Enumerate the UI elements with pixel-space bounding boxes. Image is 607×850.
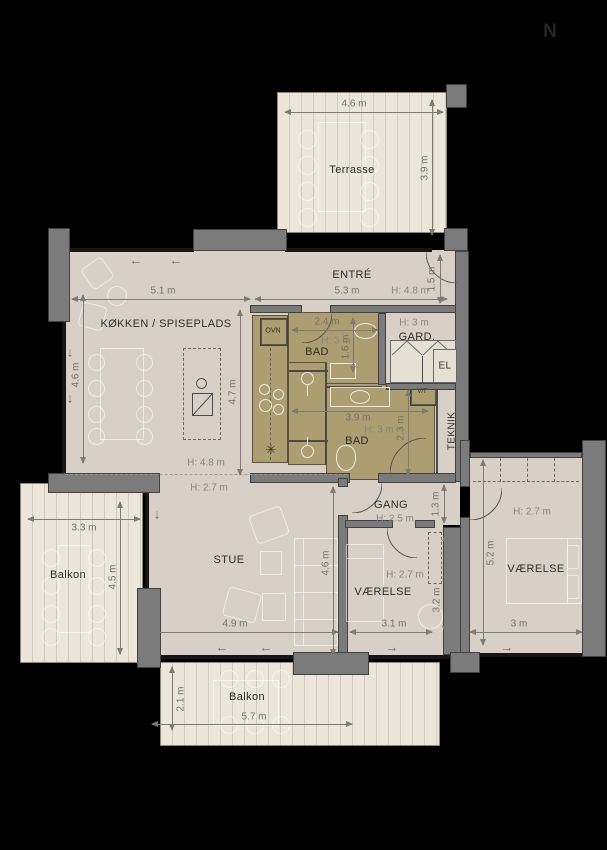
- wall-nw-pier: [48, 228, 70, 322]
- terrace-chair: [298, 182, 317, 201]
- balcony-chair: [220, 670, 238, 688]
- dining-chair: [88, 354, 105, 371]
- gard-divider: [422, 356, 423, 383]
- dim-gang-width: 1.3 m: [431, 491, 442, 516]
- dining-chair: [88, 406, 105, 423]
- dim-bad1-width-line: [292, 330, 378, 331]
- shower-stem-1: [307, 385, 308, 396]
- dim-stue-depth-line: [333, 487, 334, 655]
- teknik-label: TEKNIK: [447, 412, 458, 451]
- vaerelse2-south-glass: [470, 653, 583, 657]
- slide-arrow-left-icon: ←: [170, 254, 183, 267]
- dim-entre-width: 5.3 m: [334, 286, 359, 297]
- dim-balkonl-width-line: [28, 519, 140, 520]
- dim-v2-width-line: [470, 632, 582, 633]
- dim-kitchen-depth: 4.6 m: [71, 362, 82, 387]
- koekken-label: KØKKEN / SPISEPLADS: [100, 318, 231, 330]
- gard-ceiling: H: 3 m: [399, 318, 428, 329]
- dim-balkonb-depth: 2.1 m: [176, 686, 187, 711]
- dim-entre-width-line: [255, 299, 447, 300]
- balcony-chair: [246, 670, 264, 688]
- shower-divider-mid: [288, 440, 328, 442]
- dim-entre-niche: 1.5 m: [427, 266, 438, 291]
- vt-label: V/T: [417, 389, 426, 395]
- v2-ceiling: H: 2.7 m: [513, 507, 551, 518]
- wall-corr-v2-bottom: [460, 517, 470, 657]
- dim-v2-depth: 5.2 m: [486, 540, 497, 565]
- v2-wardrobe-tick-2: [527, 458, 528, 482]
- stue-side-table: [260, 551, 282, 575]
- balcony-chair: [42, 605, 60, 623]
- cooktop-burner-1: [259, 384, 270, 395]
- dim-stue-width: 4.9 m: [222, 619, 247, 630]
- dim-bad2-depth-line: [408, 390, 409, 475]
- dining-chair: [136, 380, 153, 397]
- dim-balkonl-depth-line: [120, 502, 121, 654]
- cooktop-burner-3: [259, 399, 272, 412]
- vaerelse1-bed: [346, 544, 384, 622]
- dim-v2-width: 3 m: [511, 619, 528, 630]
- bad2-sink: [350, 390, 370, 404]
- dining-chair: [136, 406, 153, 423]
- wall-east-outer: [582, 440, 606, 657]
- kitchen-north-glass: [66, 248, 194, 252]
- v1-ceiling: H: 2.7 m: [386, 570, 424, 581]
- terrace-chair: [298, 130, 317, 149]
- floor-plan-canvas: ✳: [0, 0, 607, 850]
- slide-arrow-left-icon: ←: [216, 641, 229, 654]
- dim-kitchen-width-line: [72, 299, 250, 300]
- dim-terrace-depth-line: [432, 100, 433, 235]
- balcony-chair: [272, 670, 290, 688]
- dim-terrace-width: 4.6 m: [341, 99, 366, 110]
- terrasse-label: Terrasse: [329, 164, 374, 176]
- dim-bad1-depth: 1.6 m: [341, 334, 352, 359]
- stue-label: STUE: [214, 554, 245, 566]
- terrace-chair: [298, 208, 317, 227]
- terrace-chair: [360, 208, 379, 227]
- v2-wardrobe-tick-1: [500, 458, 501, 482]
- wall-top-block: [193, 229, 287, 251]
- shower-head-2: [301, 445, 314, 458]
- bad2-label: BAD: [345, 435, 369, 447]
- kitchen-sink-icon: ✳: [266, 442, 277, 458]
- slide-arrow-left-icon: ←: [130, 254, 143, 267]
- slide-arrow-down-icon: ↓: [154, 508, 161, 521]
- wall-balcony-pier: [137, 588, 161, 668]
- stue-south-glass: [150, 655, 294, 659]
- wall-gang-v1-right: [415, 520, 435, 528]
- terrace-chair: [298, 156, 317, 175]
- dim-balkonb-width: 5.7 m: [241, 712, 266, 723]
- entre-label: ENTRÉ: [332, 269, 371, 281]
- dim-kitchen-width: 5.1 m: [150, 286, 175, 297]
- dim-v2-depth-line: [483, 460, 484, 645]
- vaerelse1-south-glass: [370, 655, 450, 659]
- ceiling-low-label: H: 2.7 m: [190, 483, 228, 494]
- slide-arrow-left-icon: ←: [260, 641, 273, 654]
- wall-sw-strip: [48, 473, 160, 493]
- wall-entre-gard: [330, 305, 456, 313]
- dim-island-depth: 4.7 m: [228, 379, 239, 404]
- balcony-chair: [88, 577, 106, 595]
- stue-side-table: [262, 593, 286, 621]
- vaerelse2-label: VÆRELSE: [507, 563, 564, 575]
- bad2-toilet: [336, 445, 356, 471]
- dim-balkonl-depth: 4.5 m: [108, 564, 119, 589]
- dining-chair: [136, 428, 153, 445]
- entre-north-glass: [285, 248, 432, 252]
- balkon-left-label: Balkon: [50, 569, 86, 581]
- dim-balkonb-depth-line: [172, 667, 173, 730]
- teknik-wall-left: [436, 386, 438, 478]
- gard-label: GARD.: [399, 331, 436, 343]
- lounge-side-table: [107, 286, 127, 306]
- balcony-chair: [88, 628, 106, 646]
- dim-entre-niche-line: [440, 255, 441, 303]
- slide-arrow-down-icon: ↓: [67, 392, 74, 405]
- shower-stem-2: [307, 437, 308, 446]
- balcony-chair: [42, 628, 60, 646]
- vaerelse1-door-arc: [387, 528, 417, 558]
- dim-bad1-depth-line: [353, 318, 354, 372]
- cooktop-burner-2: [273, 389, 284, 400]
- entre-ceiling: H: 4.8 m: [391, 286, 429, 297]
- dining-chair: [88, 380, 105, 397]
- dining-chair: [136, 354, 153, 371]
- dim-gang-line: [444, 485, 445, 523]
- gang-ceiling: H: 2.5 m: [376, 514, 414, 525]
- wall-stue-gang-top: [338, 478, 348, 487]
- dim-stue-width-line: [152, 632, 338, 633]
- slide-arrow-right-icon: →: [501, 641, 514, 654]
- vaerelse2-door-arc: [470, 488, 502, 520]
- dim-bad2-width: 3.9 m: [345, 413, 370, 424]
- dim-kitchen-depth-line: [83, 295, 84, 463]
- bad1-label: BAD: [305, 346, 329, 358]
- terrace-chair: [360, 130, 379, 149]
- dim-v1-depth-line: [445, 535, 446, 632]
- balcony-chair: [272, 716, 290, 734]
- cooktop-burner-4: [273, 404, 284, 415]
- dim-stue-depth: 4.6 m: [321, 550, 332, 575]
- vaerelse1-label: VÆRELSE: [354, 586, 411, 598]
- dim-terrace-width-line: [285, 112, 443, 113]
- gang-label: GANG: [374, 499, 408, 511]
- ceiling-break-line: [65, 474, 347, 475]
- stue-west-glass: [145, 491, 149, 590]
- vaerelse2-wardrobe-zone: [473, 458, 579, 482]
- wall-wet-gang: [378, 473, 456, 483]
- ceiling-high-label: H: 4.8 m: [187, 458, 225, 469]
- balcony-chair: [220, 716, 238, 734]
- dim-v1-width-line: [350, 632, 432, 633]
- dim-balkonl-width: 3.3 m: [71, 523, 96, 534]
- slide-arrow-down-icon: ↓: [67, 346, 74, 359]
- balkon-bottom-label: Balkon: [229, 691, 265, 703]
- bad2-ceiling: H: 3 m: [364, 425, 393, 436]
- wall-south-pier: [450, 652, 480, 673]
- vaerelse1-wardrobe: [428, 532, 442, 584]
- dim-bad1-width: 2.4 m: [314, 317, 339, 328]
- balcony-chair: [88, 605, 106, 623]
- north-indicator: N: [543, 21, 557, 43]
- wall-entre-bad-left: [250, 305, 302, 313]
- balcony-chair: [42, 549, 60, 567]
- island-dishwasher-diagonal: [192, 393, 213, 416]
- dim-island-line: [240, 310, 241, 475]
- dim-terrace-depth: 3.9 m: [420, 155, 431, 180]
- dim-v1-width: 3.1 m: [381, 619, 406, 630]
- wall-bad1-gard: [378, 313, 386, 385]
- island-sink: [196, 378, 207, 389]
- shower-head-1: [301, 372, 314, 385]
- v2-wardrobe-tick-3: [554, 458, 555, 482]
- balcony-left-table: [58, 545, 90, 633]
- dim-balkonb-width-line: [152, 724, 352, 725]
- balcony-chair: [88, 549, 106, 567]
- dim-bad2-depth: 2.3 m: [396, 415, 407, 440]
- wall-corr-v2-top: [460, 440, 470, 487]
- wall-terrace-se: [444, 228, 468, 251]
- terrace-chair: [360, 182, 379, 201]
- dim-v1-depth: 3.2 m: [432, 587, 443, 612]
- ovn-label: OVN: [265, 328, 280, 335]
- slide-arrow-right-icon: →: [386, 641, 399, 654]
- dining-chair: [88, 428, 105, 445]
- wall-terrace-ne: [446, 84, 467, 108]
- el-label: EL: [438, 361, 451, 372]
- shower-divider-vert: [325, 362, 327, 465]
